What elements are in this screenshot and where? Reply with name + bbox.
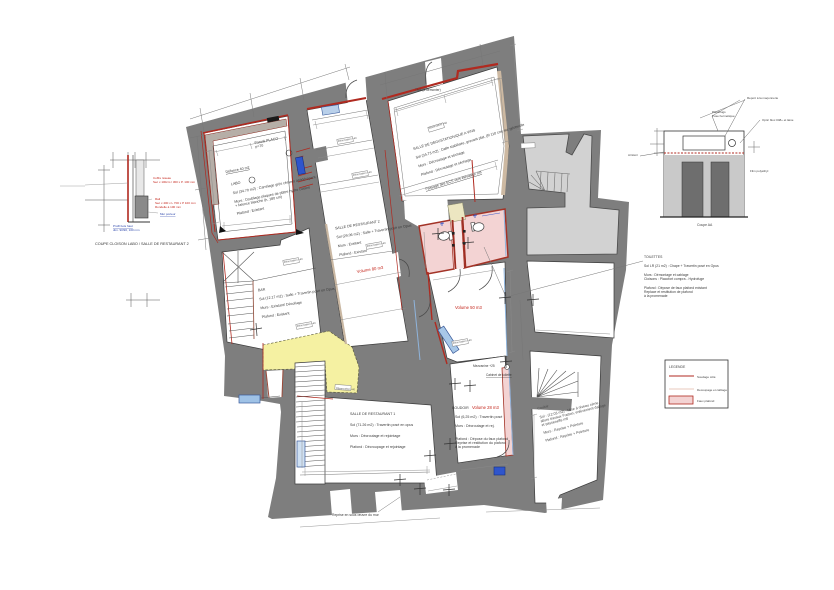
svg-text:Sol LR (21 m2) : Chape + Trave: Sol LR (21 m2) : Chape + Travertin posé … bbox=[644, 264, 719, 268]
svg-text:Arrêtoir: Arrêtoir bbox=[628, 153, 638, 157]
svg-text:Cloisons : Placofort compra -: Cloisons : Placofort compra - Hydrofuge bbox=[644, 277, 704, 281]
svg-text:Reprise en sous œuvre du mur: Reprise en sous œuvre du mur bbox=[332, 513, 380, 517]
svg-text:Report à la maçonnerie: Report à la maçonnerie bbox=[747, 96, 779, 100]
svg-text:Plafond : Décroupage et rejoin: Plafond : Décroupage et rejointage bbox=[350, 445, 406, 449]
svg-text:à la promenade: à la promenade bbox=[455, 445, 480, 449]
svg-text:Murs : Décroutage et rejointag: Murs : Décroutage et rejointage bbox=[350, 434, 400, 438]
svg-text:SALLE DE RESTAURANT 1: SALLE DE RESTAURANT 1 bbox=[350, 412, 395, 416]
svg-text:TOILETTES: TOILETTES bbox=[644, 255, 663, 259]
svg-text:Volume 50 m3: Volume 50 m3 bbox=[455, 305, 482, 310]
svg-text:Decoupage et cablage: Decoupage et cablage bbox=[697, 388, 727, 392]
svg-text:Coupe AA: Coupe AA bbox=[697, 223, 713, 227]
svg-text:Optic bloc 048+ et laine: Optic bloc 048+ et laine bbox=[762, 118, 794, 122]
svg-text:Cabinet de toilette: Cabinet de toilette bbox=[486, 373, 512, 377]
svg-text:Soudage côté: Soudage côté bbox=[697, 375, 716, 379]
svg-text:LEGENDE: LEGENDE bbox=[669, 365, 686, 369]
svg-text:à la promenade: à la promenade bbox=[644, 294, 668, 298]
svg-text:Faux plafond: Faux plafond bbox=[697, 399, 715, 403]
svg-text:COUPE CLOISON LABO / SALLE DE: COUPE CLOISON LABO / SALLE DE RESTAURANT… bbox=[95, 242, 189, 246]
svg-text:Film polyéthyl: Film polyéthyl bbox=[750, 169, 769, 173]
svg-text:dim. 90/90, 100 mm: dim. 90/90, 100 mm bbox=[113, 228, 140, 232]
svg-text:Mur porteur: Mur porteur bbox=[160, 212, 176, 216]
svg-text:Volume 28 m3: Volume 28 m3 bbox=[472, 405, 499, 410]
svg-text:BOUDOIR: BOUDOIR bbox=[452, 406, 469, 410]
svg-text:Sol (6,25 m2) : Travertin posé: Sol (6,25 m2) : Travertin posé bbox=[455, 415, 502, 419]
svg-text:Murs : Décroutage et rej.: Murs : Décroutage et rej. bbox=[455, 424, 495, 428]
svg-text:Rondelle à 100 mm: Rondelle à 100 mm bbox=[155, 205, 182, 209]
svg-text:Mezzanine +25: Mezzanine +25 bbox=[473, 364, 495, 368]
svg-text:Sol (71.26 m2) : Travertin pos: Sol (71.26 m2) : Travertin posé en opus bbox=[350, 423, 413, 427]
svg-text:Pose hermétique: Pose hermétique bbox=[712, 114, 735, 118]
svg-text:TMA (à démonter): TMA (à démonter) bbox=[415, 88, 441, 92]
svg-text:Sec x 100cm / 300 x P. 100 mm: Sec x 100cm / 300 x P. 100 mm bbox=[153, 180, 196, 184]
